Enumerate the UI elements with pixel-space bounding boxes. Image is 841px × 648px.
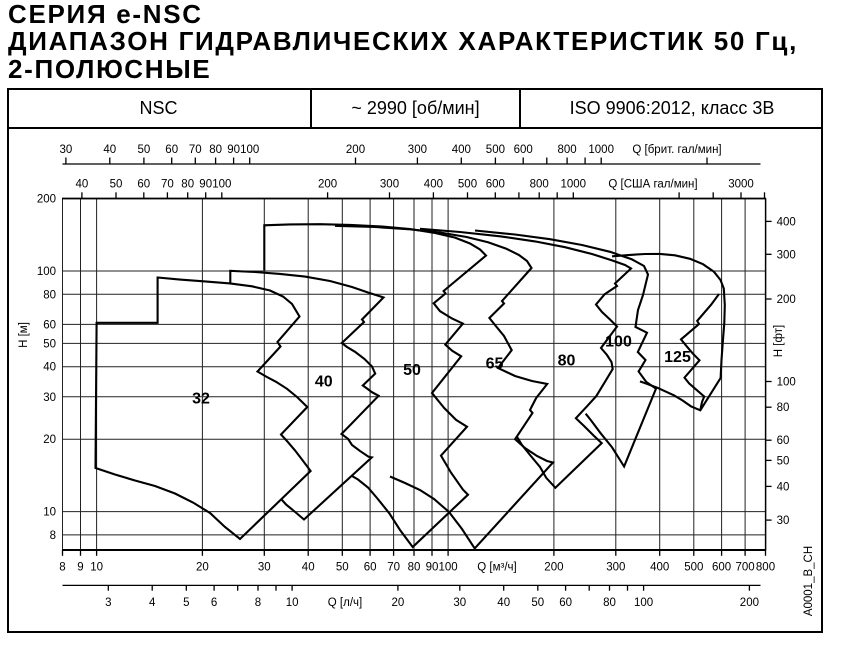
svg-text:8: 8 bbox=[50, 530, 56, 542]
svg-text:A0001_B_CH: A0001_B_CH bbox=[803, 546, 815, 616]
svg-text:40: 40 bbox=[315, 374, 333, 391]
svg-text:80: 80 bbox=[603, 597, 616, 609]
svg-text:80: 80 bbox=[209, 144, 222, 156]
svg-text:40: 40 bbox=[302, 562, 315, 574]
svg-text:40: 40 bbox=[777, 481, 790, 493]
svg-text:200: 200 bbox=[346, 144, 365, 156]
svg-text:4: 4 bbox=[149, 597, 156, 609]
svg-text:100: 100 bbox=[37, 266, 56, 278]
svg-text:3: 3 bbox=[105, 597, 111, 609]
svg-text:20: 20 bbox=[43, 434, 56, 446]
svg-text:6: 6 bbox=[211, 597, 217, 609]
svg-text:Н [фт]: Н [фт] bbox=[773, 325, 785, 357]
svg-text:500: 500 bbox=[486, 144, 505, 156]
svg-text:800: 800 bbox=[756, 562, 775, 574]
svg-text:50: 50 bbox=[43, 338, 56, 350]
svg-text:400: 400 bbox=[452, 144, 471, 156]
svg-text:100: 100 bbox=[634, 597, 653, 609]
svg-text:40: 40 bbox=[76, 179, 89, 191]
svg-text:50: 50 bbox=[531, 597, 544, 609]
svg-text:80: 80 bbox=[181, 179, 194, 191]
svg-text:600: 600 bbox=[712, 562, 731, 574]
svg-text:10: 10 bbox=[43, 507, 56, 519]
svg-text:100: 100 bbox=[605, 334, 632, 351]
svg-text:60: 60 bbox=[777, 435, 790, 447]
svg-text:Q [м³/ч]: Q [м³/ч] bbox=[477, 562, 516, 574]
svg-text:30: 30 bbox=[258, 562, 271, 574]
svg-text:Н [м]: Н [м] bbox=[18, 322, 30, 348]
svg-text:200: 200 bbox=[37, 194, 56, 206]
svg-text:600: 600 bbox=[486, 179, 505, 191]
svg-text:70: 70 bbox=[161, 179, 174, 191]
svg-text:50: 50 bbox=[336, 562, 349, 574]
svg-text:Q [брит. гал/мин]: Q [брит. гал/мин] bbox=[632, 144, 721, 156]
svg-text:400: 400 bbox=[777, 216, 796, 228]
svg-text:100: 100 bbox=[777, 377, 796, 389]
svg-text:Q [л/ч]: Q [л/ч] bbox=[328, 597, 362, 609]
svg-text:90: 90 bbox=[426, 562, 439, 574]
svg-text:500: 500 bbox=[684, 562, 703, 574]
svg-text:50: 50 bbox=[777, 455, 790, 467]
svg-text:125: 125 bbox=[664, 349, 691, 366]
svg-text:50: 50 bbox=[403, 362, 421, 379]
svg-text:8: 8 bbox=[59, 562, 65, 574]
svg-text:65: 65 bbox=[486, 356, 504, 373]
svg-text:9: 9 bbox=[77, 562, 83, 574]
svg-text:8: 8 bbox=[255, 597, 261, 609]
svg-text:20: 20 bbox=[196, 562, 209, 574]
svg-text:300: 300 bbox=[380, 179, 399, 191]
svg-text:20: 20 bbox=[392, 597, 405, 609]
svg-text:30: 30 bbox=[453, 597, 466, 609]
svg-text:400: 400 bbox=[650, 562, 669, 574]
svg-text:300: 300 bbox=[408, 144, 427, 156]
svg-text:80: 80 bbox=[777, 402, 790, 414]
svg-text:30: 30 bbox=[60, 144, 73, 156]
svg-text:60: 60 bbox=[43, 319, 56, 331]
svg-text:100: 100 bbox=[212, 179, 231, 191]
svg-text:100: 100 bbox=[439, 562, 458, 574]
svg-text:60: 60 bbox=[165, 144, 178, 156]
svg-text:40: 40 bbox=[43, 362, 56, 374]
svg-text:10: 10 bbox=[286, 597, 299, 609]
svg-text:800: 800 bbox=[558, 144, 577, 156]
svg-text:40: 40 bbox=[103, 144, 116, 156]
svg-text:500: 500 bbox=[458, 179, 477, 191]
svg-text:200: 200 bbox=[777, 294, 796, 306]
svg-text:60: 60 bbox=[137, 179, 150, 191]
svg-text:200: 200 bbox=[318, 179, 337, 191]
svg-text:30: 30 bbox=[777, 515, 790, 527]
svg-text:80: 80 bbox=[43, 289, 56, 301]
svg-text:200: 200 bbox=[740, 597, 759, 609]
svg-text:30: 30 bbox=[43, 392, 56, 404]
svg-text:Q [США гал/мин]: Q [США гал/мин] bbox=[608, 179, 697, 191]
svg-text:10: 10 bbox=[90, 562, 103, 574]
svg-text:32: 32 bbox=[192, 391, 210, 408]
svg-text:100: 100 bbox=[240, 144, 259, 156]
svg-text:600: 600 bbox=[514, 144, 533, 156]
svg-text:300: 300 bbox=[606, 562, 625, 574]
svg-text:200: 200 bbox=[544, 562, 563, 574]
svg-text:700: 700 bbox=[736, 562, 755, 574]
svg-text:80: 80 bbox=[408, 562, 421, 574]
svg-text:300: 300 bbox=[777, 249, 796, 261]
svg-text:60: 60 bbox=[559, 597, 572, 609]
svg-text:50: 50 bbox=[138, 144, 151, 156]
svg-text:80: 80 bbox=[558, 353, 576, 370]
svg-text:3000: 3000 bbox=[728, 179, 754, 191]
svg-text:5: 5 bbox=[183, 597, 189, 609]
svg-text:1000: 1000 bbox=[588, 144, 614, 156]
svg-text:70: 70 bbox=[189, 144, 202, 156]
svg-text:50: 50 bbox=[110, 179, 123, 191]
svg-text:1000: 1000 bbox=[561, 179, 587, 191]
svg-text:60: 60 bbox=[364, 562, 377, 574]
svg-text:90: 90 bbox=[199, 179, 212, 191]
svg-text:400: 400 bbox=[424, 179, 443, 191]
svg-text:800: 800 bbox=[530, 179, 549, 191]
svg-text:40: 40 bbox=[497, 597, 510, 609]
svg-text:90: 90 bbox=[227, 144, 240, 156]
svg-text:70: 70 bbox=[387, 562, 400, 574]
